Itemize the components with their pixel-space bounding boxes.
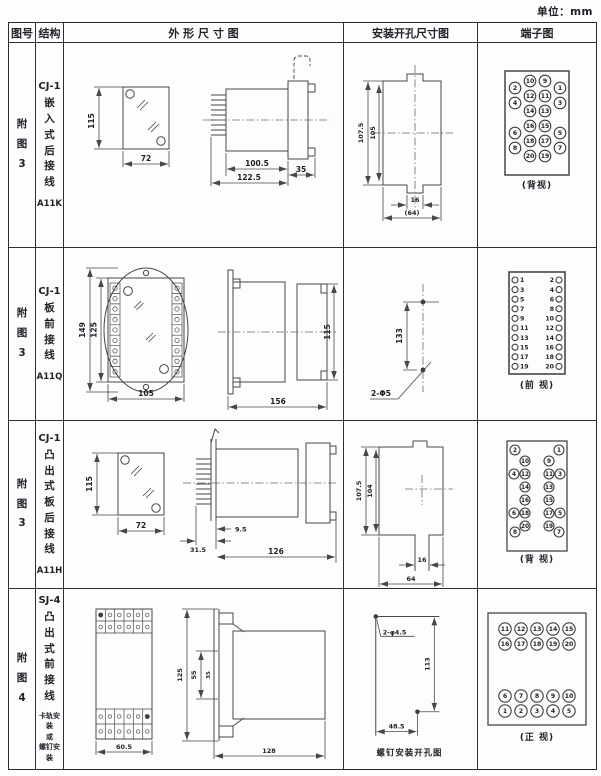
dim-width: 64 — [406, 575, 416, 583]
pin-label: 11 — [545, 472, 553, 478]
hole-spec-label: 2-φ4.5 — [383, 628, 407, 636]
pin-label: 18 — [526, 138, 535, 145]
dim-inner-height: 125 — [89, 322, 98, 338]
pin-label: 7 — [557, 530, 561, 536]
pin-label: 15 — [541, 123, 550, 130]
dim-rail: 35 — [206, 671, 212, 679]
terminal-diagram-a11q: 12 34 56 78 910 1112 1314 1516 1718 1920… — [485, 264, 589, 394]
note-line: 螺钉安装 — [36, 742, 63, 763]
cell-structure-row4: SJ-4 凸出式前接线 卡轨安装 或 螺钉安装 — [36, 589, 64, 769]
mounting-note: 卡轨安装 或 螺钉安装 — [36, 711, 63, 764]
pin-label: 7 — [519, 693, 523, 700]
terminal-pins: 12 34 56 78 910 1112 1314 1516 1718 1920 — [512, 277, 562, 371]
cell-outline-row4: 60.5 125 55 35 128 — [64, 589, 344, 769]
header-install: 安装开孔尺寸图 — [344, 23, 478, 43]
terminal-pins: 10 9 12 11 14 13 16 15 18 17 20 19 2 4 6… — [509, 75, 566, 162]
pin-label: 17 — [545, 511, 553, 517]
pin-label: 1 — [503, 708, 507, 715]
pin-label: 17 — [520, 354, 529, 361]
outline-drawing-sj4: 60.5 125 55 35 128 — [68, 595, 340, 767]
pin-label: 12 — [517, 626, 526, 633]
dim-width: 72 — [140, 154, 150, 163]
mounting-label: 凸出式板后接线 — [44, 448, 56, 558]
pin-label: 9 — [547, 459, 551, 465]
pin-label: 17 — [517, 641, 526, 648]
hole-drawing-a11q: 133 2-Φ5 — [351, 258, 471, 418]
dim-side-height: 115 — [323, 324, 332, 340]
pin-label: 9 — [543, 78, 547, 85]
pin-label: 13 — [541, 108, 550, 115]
outline-drawing-a11h: 115 72 9.5 31.5 126 — [68, 423, 340, 585]
pin-label: 3 — [558, 472, 562, 478]
cell-terminal-row2: 12 34 56 78 910 1112 1314 1516 1718 1920… — [478, 248, 596, 421]
pin-label: 19 — [541, 153, 550, 160]
dim-width: 72 — [135, 521, 145, 530]
hole-spec-label: 2-Φ5 — [371, 389, 391, 398]
hole-dot — [373, 614, 378, 619]
dim-inner-height: 105 — [369, 126, 377, 140]
pin-label: 2 — [519, 708, 523, 715]
pin-label: 8 — [535, 693, 539, 700]
mounting-label: 嵌入式后接线 — [44, 96, 56, 191]
pin-label: 12 — [545, 325, 554, 332]
note-line: 或 — [36, 732, 63, 743]
mirror-hatch — [131, 466, 154, 498]
pin-label: 2 — [513, 448, 517, 454]
pin-label: 20 — [521, 524, 529, 530]
dim-hole-distance: 133 — [395, 328, 404, 344]
terminal-pins: 2 1 10 9 4 12 11 3 14 13 16 15 6 18 17 5 — [509, 445, 565, 537]
rear-pins — [211, 95, 226, 135]
dim-height: 115 — [87, 113, 96, 129]
header-structure: 结构 — [36, 23, 64, 43]
pin-label: 19 — [520, 364, 529, 371]
fig-label: 附图3 — [16, 475, 28, 535]
pin-label: 15 — [565, 626, 574, 633]
mounting-label: 板前接线 — [44, 301, 56, 364]
pin-label: 10 — [521, 459, 529, 465]
dim-horizontal: 48.5 — [389, 723, 405, 731]
pin-label: 19 — [545, 524, 553, 530]
terminal-diagram-sj4: 11 12 13 14 15 16 17 18 19 20 6 7 8 9 10… — [478, 607, 596, 745]
pin-label: 4 — [513, 100, 518, 107]
cell-fig-row1: 附图3 — [9, 43, 36, 248]
rear-pins — [196, 459, 211, 504]
pin-label: 8 — [550, 306, 554, 313]
din-rail — [214, 609, 219, 741]
terminal-pins: 11 12 13 14 15 16 17 18 19 20 6 7 8 9 10… — [499, 623, 575, 717]
cell-install-row2: 133 2-Φ5 — [344, 248, 478, 421]
dim-outer-height: 107.5 — [357, 122, 365, 143]
pin-label: 4 — [551, 708, 556, 715]
dim-width: 105 — [138, 389, 154, 398]
view-caption: (背 视) — [520, 553, 554, 565]
pin-label: 13 — [533, 626, 542, 633]
pin-label: 12 — [521, 472, 529, 478]
cell-terminal-row4: 11 12 13 14 15 16 17 18 19 20 6 7 8 9 10… — [478, 589, 596, 769]
hole-drawing-sj4: 113 2-φ4.5 48.5 螺钉安装开孔图 — [344, 594, 477, 766]
pin-label: 16 — [521, 498, 529, 504]
model-label: CJ-1 — [38, 433, 60, 444]
pin-label: 6 — [550, 296, 554, 303]
pin-label: 11 — [501, 626, 510, 633]
pin-label: 18 — [533, 641, 542, 648]
terminal-strip-dots — [112, 286, 178, 374]
mounting-label: 凸出式前接线 — [44, 610, 56, 705]
pin-label: 13 — [545, 485, 553, 491]
header-outline: 外 形 尺 寸 图 — [64, 23, 344, 43]
dim-slot-width: 16 — [410, 196, 420, 204]
pin-label: 12 — [526, 93, 535, 100]
cell-outline-row3: 115 72 9.5 31.5 126 — [64, 421, 344, 589]
cell-fig-row4: 附图4 — [9, 589, 36, 769]
pin-label: 16 — [545, 344, 554, 351]
pin-label: 6 — [512, 511, 516, 517]
pin-label: 3 — [535, 708, 539, 715]
pin-label: 18 — [545, 354, 554, 361]
view-caption: (背视) — [522, 179, 552, 191]
dim-slot-width: 16 — [417, 556, 427, 564]
cell-terminal-row1: 10 9 12 11 14 13 16 15 18 17 20 19 2 4 6… — [478, 43, 596, 248]
pin-label: 5 — [520, 296, 524, 303]
hole-caption: 螺钉安装开孔图 — [377, 747, 443, 757]
pin-label: 4 — [550, 287, 555, 294]
pin-label: 5 — [558, 130, 562, 137]
pin-label: 17 — [541, 138, 550, 145]
model-code: A11K — [37, 199, 62, 209]
dim-flange: 35 — [295, 165, 305, 174]
dim-height: 125 — [176, 668, 184, 682]
dim-vertical: 113 — [423, 657, 431, 670]
pin-label: 10 — [565, 693, 574, 700]
pin-label: 7 — [558, 145, 562, 152]
dim-inner-height: 104 — [366, 484, 374, 498]
cell-fig-row3: 附图3 — [9, 421, 36, 589]
pin-label: 9 — [520, 316, 524, 323]
fig-label: 附图3 — [16, 115, 28, 175]
mirror-hatch — [137, 100, 159, 132]
pin-label: 15 — [545, 498, 553, 504]
cutout-drawing-a11h: 107.5 104 16 64 — [349, 425, 473, 589]
model-code: A11Q — [37, 372, 63, 382]
header-fig: 图号 — [9, 23, 36, 43]
dim-pins: 31.5 — [189, 546, 206, 554]
hole-dot — [420, 368, 425, 373]
pin-label: 7 — [520, 306, 524, 313]
model-label: CJ-1 — [38, 286, 60, 297]
pin-label: 2 — [550, 277, 554, 284]
terminal-diagram-a11k: 10 9 12 11 14 13 16 15 18 17 20 19 2 4 6… — [485, 65, 589, 195]
pin-label: 2 — [513, 85, 517, 92]
dim-height: 115 — [85, 476, 94, 492]
model-label: SJ-4 — [38, 595, 60, 606]
outline-drawing-a11k: 115 72 100.5 35 122.5 — [68, 45, 340, 245]
pin-label: 3 — [520, 287, 524, 294]
model-code: A11H — [37, 566, 63, 576]
dim-length: 128 — [262, 747, 276, 755]
cell-fig-row2: 附图3 — [9, 248, 36, 421]
cell-install-row3: 107.5 104 16 64 — [344, 421, 478, 589]
unit-label: 单位：mm — [537, 4, 593, 19]
pin-label: 1 — [520, 277, 524, 284]
pin-label: 11 — [541, 93, 550, 100]
view-caption: (前 视) — [520, 379, 554, 391]
pin-label: 13 — [520, 335, 529, 342]
pin-label: 6 — [503, 693, 507, 700]
pin-label: 11 — [520, 325, 529, 332]
cell-outline-row2: 149 125 105 156 115 — [64, 248, 344, 421]
pin-label: 1 — [558, 85, 562, 92]
terminal-diagram-a11h: 2 1 10 9 4 12 11 3 14 13 16 15 6 18 17 5 — [485, 435, 589, 565]
dim-offset: 9.5 — [235, 526, 247, 534]
pin-label: 14 — [526, 108, 535, 115]
dim-width: 60.5 — [115, 743, 132, 751]
pin-label: 6 — [513, 130, 517, 137]
dim-clip: 55 — [190, 670, 198, 680]
cell-terminal-row3: 2 1 10 9 4 12 11 3 14 13 16 15 6 18 17 5 — [478, 421, 596, 589]
model-label: CJ-1 — [38, 81, 60, 92]
pin-label: 10 — [545, 316, 554, 323]
pin-label: 9 — [551, 693, 555, 700]
cell-structure-row2: CJ-1 板前接线 A11Q — [36, 248, 64, 421]
document-page: 单位：mm 图号 结构 外 形 尺 寸 图 安装开孔尺寸图 端子图 附图3 CJ… — [0, 0, 601, 776]
handle-dashed — [294, 56, 310, 79]
pin-label: 3 — [558, 100, 562, 107]
pin-label: 19 — [549, 641, 558, 648]
view-caption: (正 视) — [520, 731, 554, 743]
pin-label: 5 — [567, 708, 571, 715]
pin-label: 16 — [526, 123, 535, 130]
cell-install-row4: 113 2-φ4.5 48.5 螺钉安装开孔图 — [344, 589, 478, 769]
fig-label: 附图4 — [16, 649, 28, 709]
pin-label: 4 — [512, 472, 516, 478]
dim-length: 126 — [268, 547, 284, 556]
pin-label: 18 — [521, 511, 529, 517]
pin-label: 15 — [520, 344, 529, 351]
pin-label: 14 — [521, 485, 529, 491]
fig-label: 附图3 — [16, 304, 28, 364]
cell-structure-row1: CJ-1 嵌入式后接线 A11K — [36, 43, 64, 248]
pin-label: 14 — [549, 626, 558, 633]
cell-structure-row3: CJ-1 凸出式板后接线 A11H — [36, 421, 64, 589]
dim-outer-height: 107.5 — [355, 480, 363, 501]
dim-body: 100.5 — [245, 159, 269, 168]
mirror-hatch — [134, 301, 156, 342]
dim-length: 156 — [270, 397, 286, 406]
header-terminal: 端子图 — [478, 23, 596, 43]
pin-label: 20 — [565, 641, 574, 648]
pin-label: 20 — [545, 364, 554, 371]
pin-label: 5 — [558, 511, 562, 517]
pin-label: 10 — [526, 78, 535, 85]
pin-label: 14 — [545, 335, 554, 342]
outline-drawing-a11q: 149 125 105 156 115 — [68, 252, 340, 420]
dim-width: (64) — [404, 209, 419, 217]
cutout-drawing-a11k: 107.5 105 16 (64) — [349, 59, 473, 227]
dim-total: 122.5 — [237, 173, 261, 182]
dim-outer-height: 149 — [78, 322, 87, 338]
cell-outline-row1: 115 72 100.5 35 122.5 — [64, 43, 344, 248]
pin-label: 16 — [501, 641, 510, 648]
cell-install-row1: 107.5 105 16 (64) — [344, 43, 478, 248]
pin-label: 8 — [513, 530, 517, 536]
note-line: 卡轨安装 — [36, 711, 63, 732]
pin-label: 20 — [526, 153, 535, 160]
spec-table: 图号 结构 外 形 尺 寸 图 安装开孔尺寸图 端子图 附图3 CJ-1 嵌入式… — [8, 22, 597, 770]
pin-label: 8 — [513, 145, 517, 152]
pin-label: 1 — [557, 448, 561, 454]
